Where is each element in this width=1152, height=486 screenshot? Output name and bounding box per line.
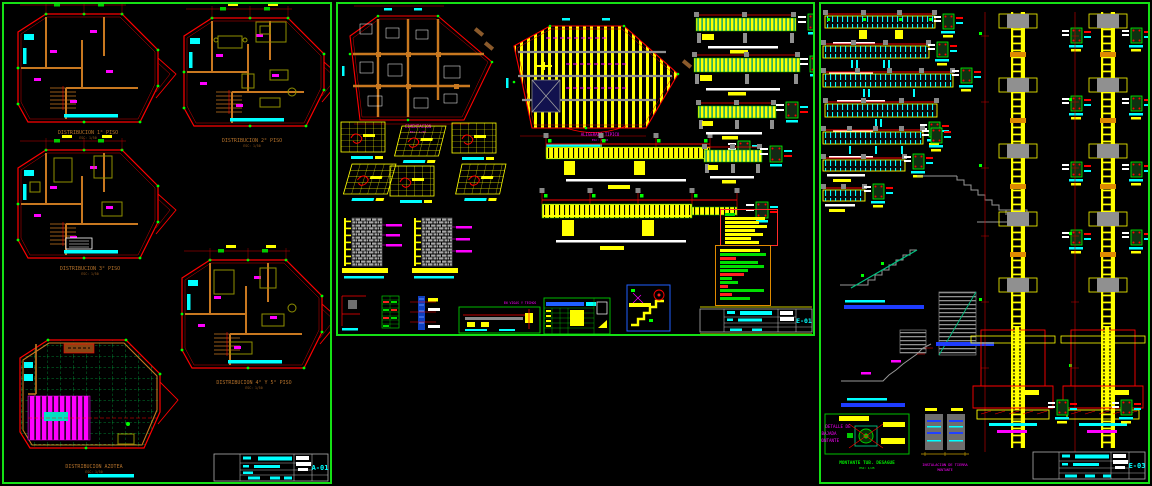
sheet-number-e03: E-03 xyxy=(1129,462,1146,470)
wall-section-1 xyxy=(342,218,402,279)
r-beam-6 xyxy=(821,154,933,182)
wall-section-2 xyxy=(412,218,472,279)
beam-detail-row-2 xyxy=(692,52,813,96)
legend-text-bar xyxy=(725,241,759,244)
roof-plan-azotea xyxy=(20,339,178,450)
plan5-scale: ESC: 1/50 xyxy=(85,470,102,474)
floor-plan-3 xyxy=(17,135,176,259)
legend-text-bar xyxy=(720,273,744,276)
legend-text-bar xyxy=(720,265,764,268)
rebar-mini-table xyxy=(382,296,399,328)
plan4-scale: ESC: 1/50 xyxy=(245,386,262,390)
legend-text-bar xyxy=(720,281,738,284)
beam-detail-row-1 xyxy=(694,12,813,54)
tierra-line1: INSTALACION DE TIERRA xyxy=(922,463,968,467)
title-block-architecture: A-01 xyxy=(214,454,328,481)
legend-text-bar xyxy=(720,289,764,292)
legend-text-bar xyxy=(720,253,766,256)
floor-plan-4 xyxy=(181,245,330,369)
r-beam-7 xyxy=(821,184,893,212)
beam-detail-row-4 xyxy=(702,144,792,184)
left-footer-label xyxy=(88,474,134,478)
stair-section-2 xyxy=(840,250,924,309)
legend-text-bar xyxy=(725,233,763,236)
bajada-line1: DETALLE DE xyxy=(825,424,851,429)
legend-text-bar xyxy=(720,277,732,280)
column-sections-1 xyxy=(1062,28,1091,254)
slab-panel-2 xyxy=(393,126,446,163)
bajada-line3: MONTANTE xyxy=(821,438,840,443)
structure2-drawing: DETALLE DE BAJADA MONTANTE MONTANTE TUB.… xyxy=(821,4,1148,482)
tierra-line2: MONTANTE xyxy=(937,468,952,472)
stair-section-3 xyxy=(841,344,933,407)
tierra-detail: INSTALACION DE TIERRA MONTANTE xyxy=(921,408,969,472)
plan2-scale: ESC: 1/50 xyxy=(243,144,260,148)
floor-plan-2 xyxy=(183,4,330,127)
foundation-plan xyxy=(342,6,494,124)
legend-text-bar xyxy=(720,293,732,296)
slab-plan-scale: ESC: 1/50 xyxy=(592,138,608,142)
anchor-detail-box xyxy=(459,307,540,333)
sheet-architecture: DISTRIBUCION 1° PISO ESC: 1/50 DISTRIBUC… xyxy=(2,2,332,484)
corner-detail-1 xyxy=(342,296,366,331)
slab-panel-6 xyxy=(454,164,506,201)
general-notes-box xyxy=(720,209,778,246)
legend-text-bar xyxy=(725,213,735,216)
slab-panel-3 xyxy=(452,123,496,160)
legend-text-bar xyxy=(720,285,728,288)
legend-text-bar xyxy=(725,221,759,224)
anchor-detail-label: EN VIGAS Y TECHOS xyxy=(504,301,537,305)
sheet-number-a01: A-01 xyxy=(312,464,329,472)
beam-detail-row-3 xyxy=(696,100,808,140)
plan1-scale: ESC: 1/50 xyxy=(79,136,96,140)
sheet-structure-1: CIMENTACION ESC: 1/50 ALIGERADO TIPICO E… xyxy=(336,2,815,336)
legend-text-bar xyxy=(725,225,767,228)
floor-plan-1 xyxy=(17,4,176,123)
legend-text-bar xyxy=(725,229,755,232)
slab-panel-1 xyxy=(341,122,385,159)
legend-text-bar xyxy=(720,269,748,272)
title-block-structure1: E-01 xyxy=(700,307,812,334)
bajada-montante-box: DETALLE DE BAJADA MONTANTE xyxy=(821,414,909,454)
plan3-scale: ESC: 1/50 xyxy=(81,272,98,276)
slab-plan xyxy=(506,18,692,136)
sheet-number-e01: E-01 xyxy=(796,317,812,325)
legend-text-bar xyxy=(720,297,750,300)
schedule-table xyxy=(544,298,610,334)
cad-model-space: DISTRIBUCION 1° PISO ESC: 1/50 DISTRIBUC… xyxy=(0,0,1152,486)
footing-section-2 xyxy=(1112,400,1141,424)
column-splice-detail xyxy=(410,296,440,334)
title-block-structure2: E-03 xyxy=(1033,452,1145,479)
footing-section-1 xyxy=(1048,400,1077,424)
legend-text-bar xyxy=(720,261,758,264)
architecture-drawing: DISTRIBUCION 1° PISO ESC: 1/50 DISTRIBUC… xyxy=(4,4,330,482)
sheet-structure-2: DETALLE DE BAJADA MONTANTE MONTANTE TUB.… xyxy=(819,2,1150,484)
legend-text-bar xyxy=(725,237,751,240)
legend-text-bar xyxy=(720,249,760,252)
slab-panel-4 xyxy=(341,164,396,201)
bajada-line2: BAJADA xyxy=(821,431,837,436)
slab-panel-5 xyxy=(390,166,434,203)
legend-text-bar xyxy=(725,217,765,220)
legend-text-bar xyxy=(720,257,736,260)
stair-rebar-box xyxy=(627,285,670,331)
specifications-legend-box xyxy=(715,245,771,306)
montante-scale: ESC: 1/25 xyxy=(859,466,874,470)
column-sections-2 xyxy=(1122,28,1148,254)
